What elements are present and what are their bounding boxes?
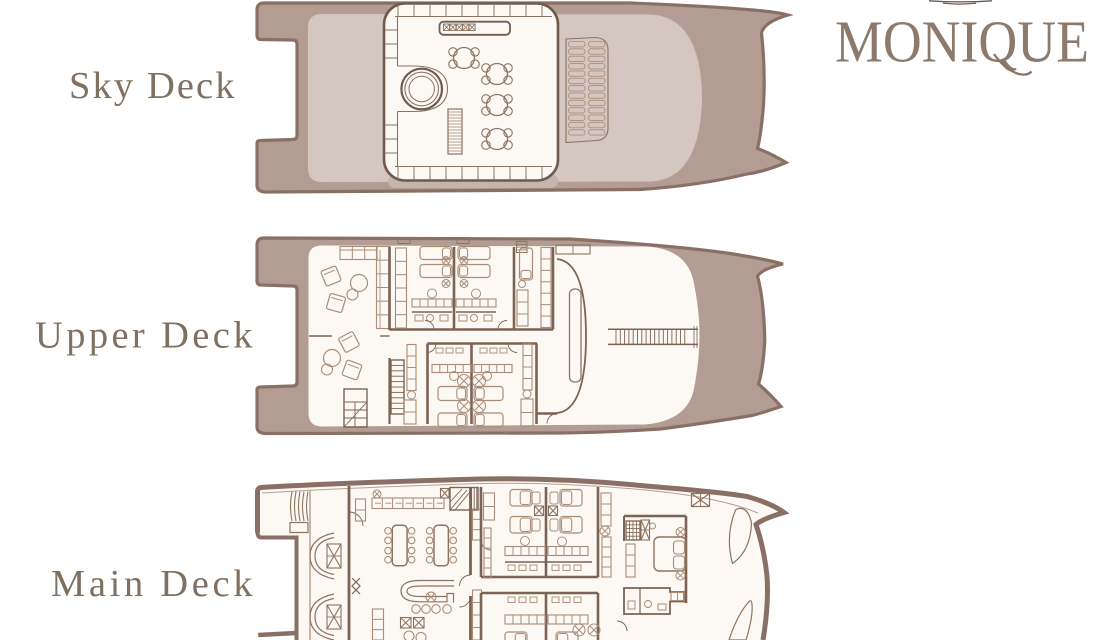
svg-text:Upper Deck: Upper Deck bbox=[35, 315, 255, 357]
svg-text:MONIQUE: MONIQUE bbox=[835, 9, 1089, 75]
svg-text:Sky Deck: Sky Deck bbox=[69, 65, 237, 107]
svg-text:Main Deck: Main Deck bbox=[51, 563, 255, 605]
